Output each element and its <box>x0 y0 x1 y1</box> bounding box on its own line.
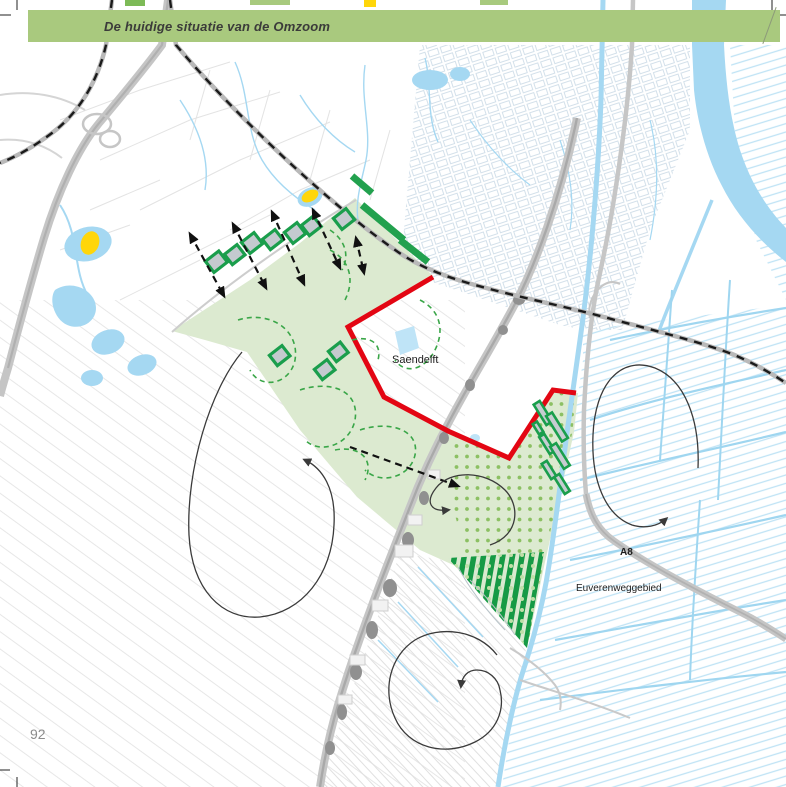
label-euverenweggebied: Euverenweggebied <box>576 583 662 594</box>
label-saendelft: Saendelft <box>392 354 438 366</box>
map-canvas <box>0 0 786 787</box>
page-title: De huidige situatie van de Omzoom <box>28 19 330 34</box>
label-a8: A8 <box>620 547 633 558</box>
document-page: De huidige situatie van de Omzoom Saende… <box>0 0 786 787</box>
page-number: 92 <box>30 726 46 742</box>
title-banner: De huidige situatie van de Omzoom <box>28 10 780 42</box>
